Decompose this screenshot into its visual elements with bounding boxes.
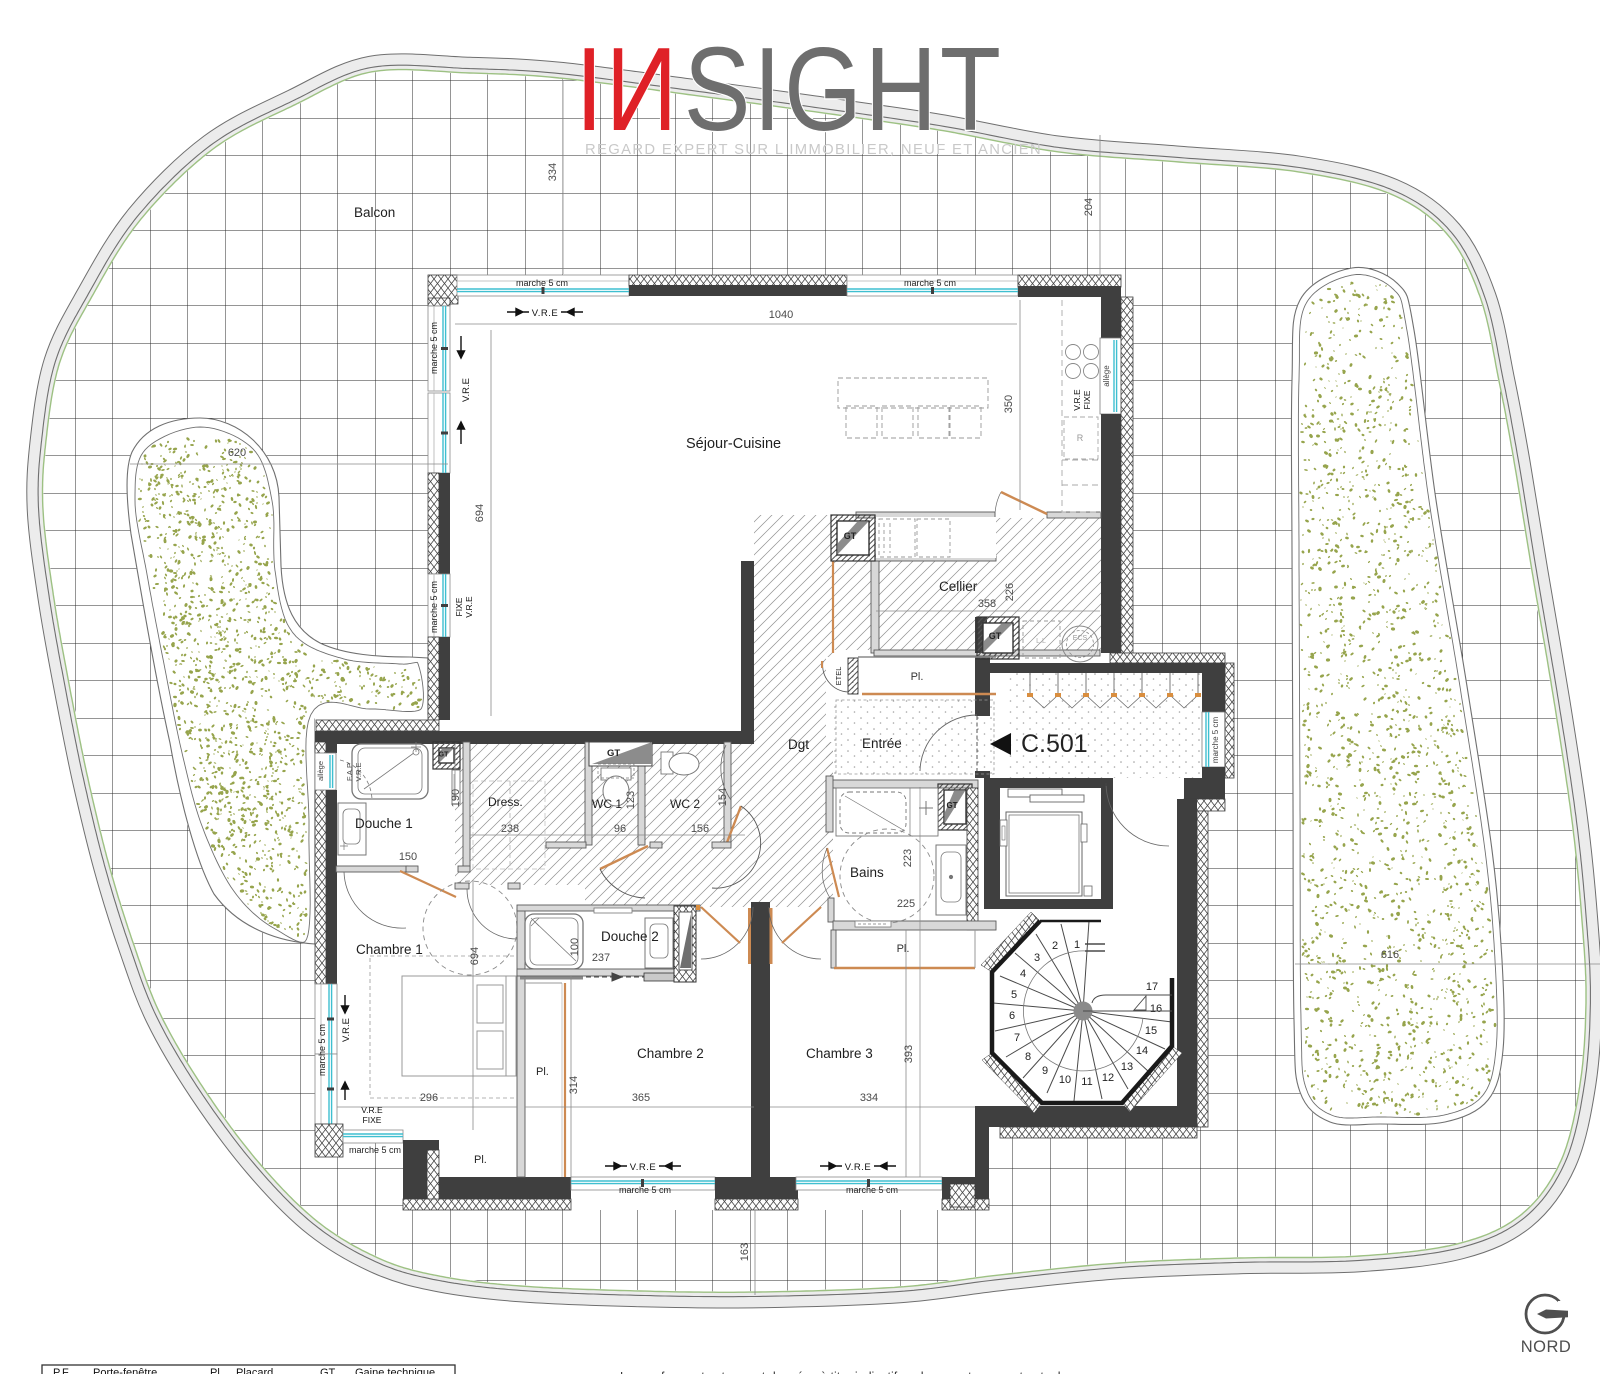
- svg-text:REGARD EXPERT SUR L IMMOBILIER: REGARD EXPERT SUR L IMMOBILIER, NEUF ET …: [585, 142, 1042, 158]
- svg-text:Entrée: Entrée: [862, 736, 902, 751]
- svg-text:marche 5 cm: marche 5 cm: [349, 1145, 401, 1155]
- svg-text:2: 2: [1052, 940, 1058, 952]
- svg-text:Dress.: Dress.: [488, 795, 523, 809]
- svg-text:100: 100: [569, 938, 581, 956]
- svg-text:Bains: Bains: [850, 865, 884, 880]
- svg-text:Gaine technique: Gaine technique: [355, 1367, 435, 1374]
- svg-text:F.A.P: F.A.P: [345, 763, 354, 781]
- svg-text:V.R.E: V.R.E: [354, 763, 363, 782]
- svg-text:ECS: ECS: [1073, 635, 1088, 642]
- svg-text:marche 5 cm: marche 5 cm: [904, 278, 956, 288]
- svg-text:10: 10: [1059, 1074, 1071, 1086]
- svg-text:358: 358: [978, 598, 996, 610]
- svg-text:IИ: IИ: [575, 24, 680, 156]
- svg-text:V.R.E: V.R.E: [630, 1162, 656, 1173]
- svg-text:NORD: NORD: [1521, 1338, 1572, 1356]
- svg-text:365: 365: [632, 1092, 650, 1104]
- svg-text:SIGHT: SIGHT: [684, 24, 1004, 156]
- svg-text:190: 190: [450, 789, 462, 807]
- svg-text:156: 156: [691, 823, 709, 835]
- svg-text:GT: GT: [607, 748, 620, 759]
- svg-text:marche 5 cm: marche 5 cm: [429, 581, 439, 633]
- svg-text:L.L: L.L: [1036, 638, 1046, 645]
- svg-text:14: 14: [1136, 1045, 1148, 1057]
- svg-text:Chambre 2: Chambre 2: [637, 1046, 704, 1061]
- svg-text:C.501: C.501: [1021, 730, 1088, 758]
- svg-text:4: 4: [1020, 968, 1026, 980]
- svg-text:226: 226: [1004, 583, 1016, 601]
- svg-text:694: 694: [469, 947, 481, 965]
- svg-text:allège: allège: [1102, 365, 1111, 387]
- svg-text:Pl.: Pl.: [911, 671, 924, 683]
- svg-text:marche 5 cm: marche 5 cm: [619, 1185, 671, 1195]
- svg-text:marche 5 cm: marche 5 cm: [846, 1185, 898, 1195]
- svg-text:Douche 2: Douche 2: [601, 929, 659, 944]
- svg-text:296: 296: [420, 1092, 438, 1104]
- svg-text:5: 5: [1011, 989, 1017, 1001]
- svg-text:FIXE: FIXE: [454, 597, 464, 616]
- svg-text:Dgt: Dgt: [788, 737, 809, 752]
- svg-text:Pl.: Pl.: [897, 943, 910, 955]
- svg-text:204: 204: [1083, 198, 1095, 216]
- svg-text:R: R: [1077, 433, 1084, 443]
- svg-text:GT: GT: [844, 531, 857, 541]
- svg-text:Chambre 1: Chambre 1: [356, 942, 423, 957]
- svg-text:6: 6: [1009, 1010, 1015, 1022]
- svg-text:1040: 1040: [769, 309, 793, 321]
- svg-text:GT: GT: [439, 752, 449, 759]
- svg-text:V.R.E: V.R.E: [845, 1162, 871, 1173]
- svg-text:GT: GT: [946, 801, 957, 810]
- svg-text:FIXE: FIXE: [1082, 390, 1092, 409]
- svg-text:9: 9: [1042, 1065, 1048, 1077]
- svg-text:ETEL: ETEL: [834, 667, 843, 686]
- svg-text:marche 5 cm: marche 5 cm: [429, 322, 439, 374]
- svg-text:694: 694: [474, 504, 486, 522]
- svg-text:11: 11: [1081, 1076, 1092, 1088]
- svg-text:1: 1: [1074, 939, 1080, 951]
- svg-text:334: 334: [547, 163, 559, 181]
- svg-text:WC 1: WC 1: [592, 797, 622, 811]
- svg-text:150: 150: [399, 851, 417, 863]
- svg-text:393: 393: [903, 1045, 915, 1063]
- svg-text:314: 314: [568, 1076, 580, 1094]
- svg-text:350: 350: [1003, 395, 1015, 413]
- svg-text:3: 3: [1034, 952, 1040, 964]
- svg-text:V.R.E: V.R.E: [361, 1105, 383, 1115]
- svg-text:allège: allège: [316, 761, 325, 781]
- svg-text:Balcon: Balcon: [354, 205, 395, 220]
- svg-text:13: 13: [1121, 1061, 1133, 1073]
- svg-text:616: 616: [1381, 949, 1399, 961]
- svg-text:Les surfaces et cotes sont don: Les surfaces et cotes sont données à tit…: [620, 1370, 1061, 1374]
- svg-text:Porte-fenêtre: Porte-fenêtre: [93, 1367, 157, 1374]
- svg-text:225: 225: [897, 898, 915, 910]
- svg-text:16: 16: [1150, 1003, 1162, 1015]
- svg-text:15: 15: [1145, 1025, 1157, 1037]
- svg-text:V.R.E: V.R.E: [532, 308, 558, 319]
- svg-text:GT: GT: [989, 631, 1002, 641]
- svg-text:Cellier: Cellier: [939, 579, 978, 594]
- svg-text:P.F: P.F: [53, 1367, 69, 1374]
- svg-text:Pl.: Pl.: [474, 1154, 487, 1166]
- svg-text:marche 5 cm: marche 5 cm: [1211, 717, 1220, 764]
- svg-text:Chambre 3: Chambre 3: [806, 1046, 873, 1061]
- svg-text:WC 2: WC 2: [670, 797, 700, 811]
- svg-text:238: 238: [501, 823, 519, 835]
- svg-text:8: 8: [1025, 1051, 1031, 1063]
- svg-text:FIXE: FIXE: [363, 1115, 382, 1125]
- svg-text:Douche 1: Douche 1: [355, 816, 413, 831]
- svg-text:Pl.: Pl.: [210, 1367, 223, 1374]
- svg-text:223: 223: [902, 849, 914, 867]
- svg-text:334: 334: [860, 1092, 878, 1104]
- svg-text:154: 154: [717, 788, 729, 806]
- svg-text:V.R.E: V.R.E: [464, 596, 474, 618]
- svg-text:Placard: Placard: [236, 1367, 273, 1374]
- svg-text:7: 7: [1014, 1032, 1020, 1044]
- svg-text:96: 96: [614, 823, 626, 835]
- svg-text:GT: GT: [320, 1367, 336, 1374]
- svg-text:V.R.E: V.R.E: [461, 378, 472, 402]
- svg-text:Pl.: Pl.: [536, 1066, 549, 1078]
- svg-text:V.R.E: V.R.E: [1072, 389, 1082, 411]
- svg-text:12: 12: [1102, 1072, 1114, 1084]
- svg-text:620: 620: [228, 447, 246, 459]
- svg-text:V.R.E: V.R.E: [341, 1018, 352, 1042]
- svg-text:237: 237: [592, 952, 610, 964]
- svg-text:marche 5 cm: marche 5 cm: [317, 1024, 327, 1076]
- svg-text:123: 123: [625, 791, 637, 809]
- svg-text:Séjour-Cuisine: Séjour-Cuisine: [686, 436, 781, 452]
- svg-text:17: 17: [1146, 981, 1158, 993]
- svg-text:163: 163: [739, 1243, 751, 1261]
- svg-text:marche 5 cm: marche 5 cm: [516, 278, 568, 288]
